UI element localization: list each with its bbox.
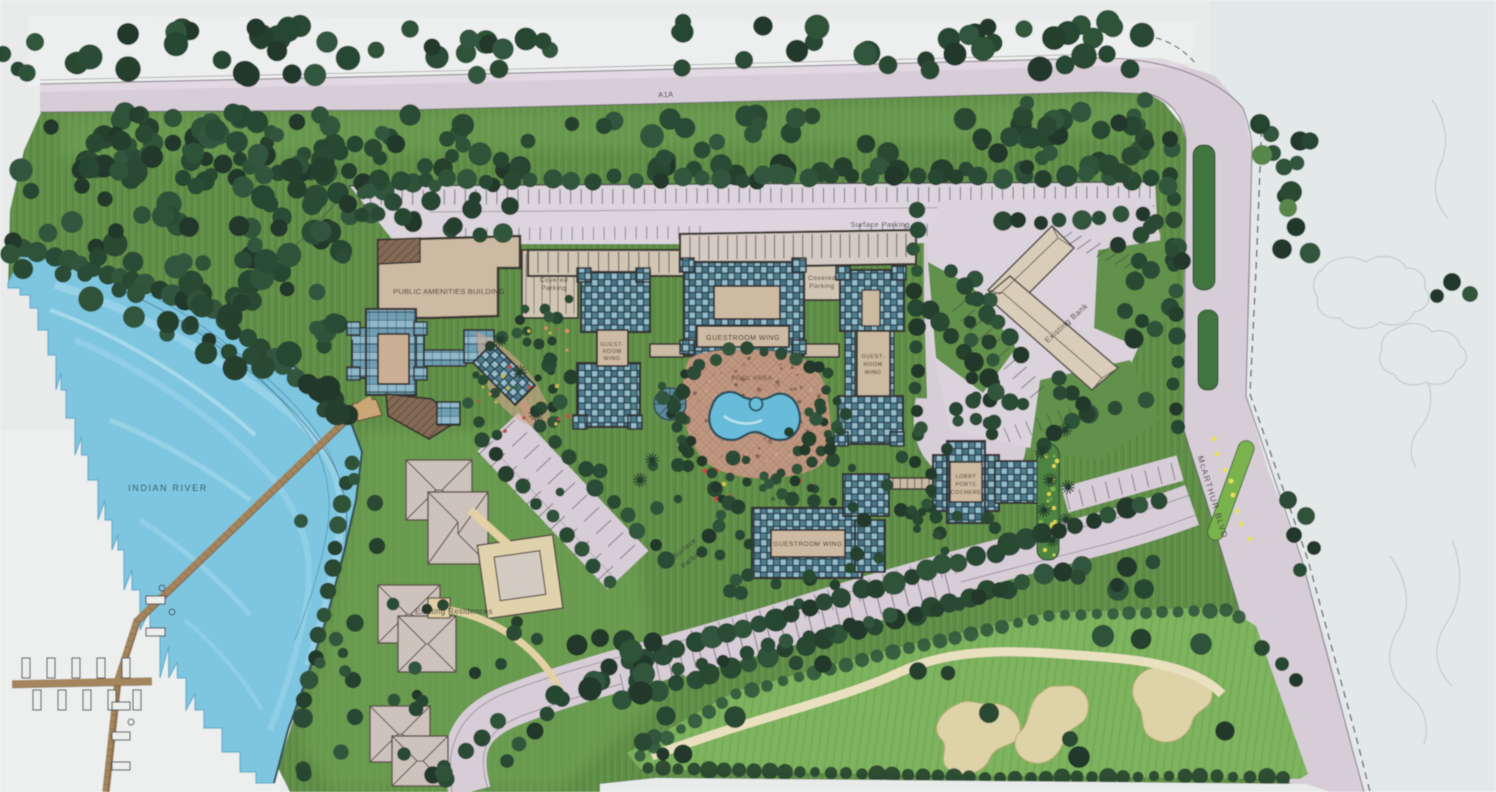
svg-text:GUESTROOM WING: GUESTROOM WING: [773, 541, 842, 548]
svg-text:ROOM: ROOM: [863, 362, 882, 368]
svg-text:PORTE: PORTE: [955, 482, 976, 488]
svg-text:GUESTROOM WING: GUESTROOM WING: [706, 335, 780, 342]
svg-text:A1A: A1A: [658, 90, 674, 100]
svg-text:Covered: Covered: [808, 275, 836, 282]
svg-text:Parking: Parking: [541, 285, 567, 292]
svg-text:PUBLIC AMENITIES BUILDING: PUBLIC AMENITIES BUILDING: [393, 287, 505, 296]
svg-text:INDIAN RIVER: INDIAN RIVER: [128, 483, 208, 493]
svg-text:GUEST-: GUEST-: [861, 354, 884, 360]
svg-text:ROOM: ROOM: [602, 349, 621, 355]
svg-text:COCHERE: COCHERE: [950, 490, 981, 496]
svg-text:POOL AREA: POOL AREA: [731, 375, 773, 382]
svg-text:Parking: Parking: [809, 283, 835, 290]
svg-text:LOBBY: LOBBY: [956, 474, 977, 480]
svg-text:WING: WING: [604, 356, 621, 362]
svg-text:Surface Parking: Surface Parking: [850, 220, 909, 229]
svg-text:GUEST-: GUEST-: [600, 342, 623, 348]
svg-text:WING: WING: [865, 370, 882, 376]
svg-text:Existing Residences: Existing Residences: [415, 607, 493, 616]
svg-text:Covered: Covered: [540, 277, 568, 284]
